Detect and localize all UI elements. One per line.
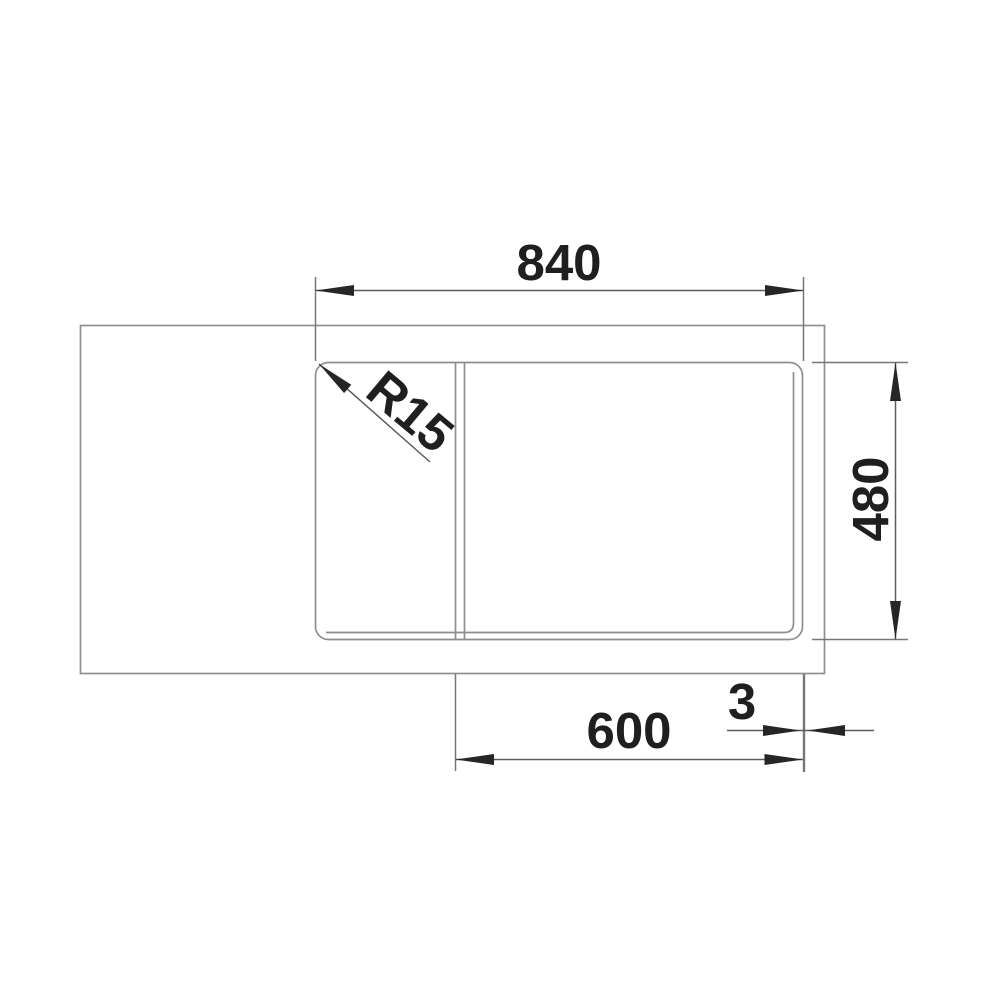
- dim-label-clearance: 3: [712, 676, 772, 727]
- bowl-divider: [456, 363, 465, 639]
- extension-lines: [316, 277, 909, 772]
- sink-outer-body: [81, 326, 825, 674]
- dim-label-width: 840: [315, 237, 803, 288]
- dimension-drawing: 840 480 600 3 R15: [0, 0, 992, 992]
- dim-label-depth: 480: [845, 359, 897, 639]
